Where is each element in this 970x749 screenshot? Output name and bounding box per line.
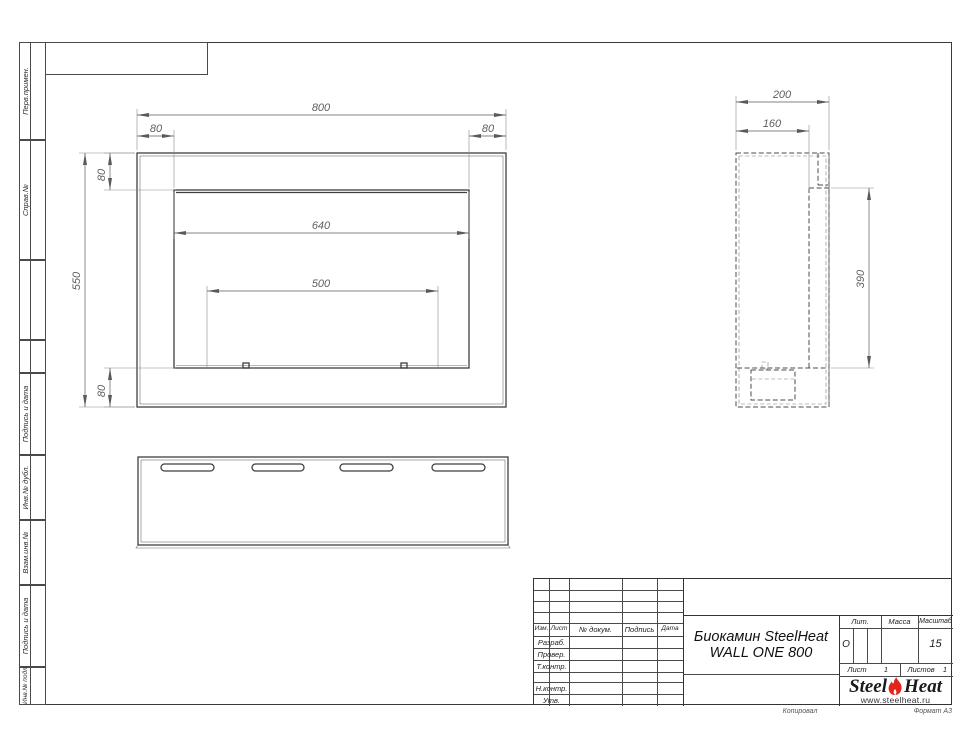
sidebar-box-podpis-data-1: Подпись и дата [19,373,46,455]
sidebar-label: Инв.№ подл. [21,668,31,704]
role-utv: Утв. [534,697,569,705]
sidebar-label: Взам.инв.№ [21,521,31,584]
scale-value: 15 [918,639,953,650]
footer-format: Формат А3 [880,708,952,715]
col-data: Дата [657,626,683,633]
copy-stamp-box [45,42,208,75]
sidebar-divider [30,341,31,372]
sidebar-box-empty [19,340,46,373]
sidebar-divider [30,261,31,339]
sidebar-box-empty [19,260,46,340]
col-docnum: № докум. [569,626,622,634]
lit-label: Лит. [839,618,881,626]
scale-label: Масштаб [918,618,953,625]
sidebar-box-inv-dubl: Инв.№ дубл. [19,455,46,520]
document-title: Биокамин SteelHeat WALL ONE 800 [683,615,839,674]
title-block: Изм. Лист № докум. Подпись Дата Разраб. … [533,578,952,705]
col-izm: Изм. [534,626,549,633]
document-title-line1: Биокамин SteelHeat [694,629,828,645]
sidebar-box-sprav-no: Справ.№ [19,140,46,260]
footer-copied: Копировал [740,708,860,715]
role-nkontr: Н.контр. [534,685,569,693]
company-logo: Steel Heat www.steelheat.ru [839,676,952,705]
logo-text-steel: Steel [849,677,887,696]
role-tkontr: Т.контр. [534,663,569,671]
document-title-line2: WALL ONE 800 [710,645,813,661]
sidebar-label: Справ.№ [21,141,31,259]
logo-text-heat: Heat [904,677,942,696]
drawing-sheet: 800 80 80 80 550 640 [0,0,970,749]
flame-icon [888,677,903,696]
sheets-label: Листов [903,666,939,674]
sidebar-box-inv-podl: Инв.№ подл. [19,667,46,705]
sidebar-box-vzam-inv: Взам.инв.№ [19,520,46,585]
sidebar-label: Инв.№ дубл. [21,456,31,519]
sidebar-label: Подпись и дата [21,586,31,666]
sidebar-label: Подпись и дата [21,374,31,454]
role-prover: Провер. [534,651,569,659]
lit-value: О [839,640,853,650]
sheet-value: 1 [876,666,896,674]
col-list: Лист [549,626,569,633]
logo-url: www.steelheat.ru [861,695,931,705]
sheet-label: Лист [841,666,873,674]
role-razrab: Разраб. [534,639,569,647]
sidebar-label: Перв.примен. [21,43,31,139]
col-podpis: Подпись [622,626,657,634]
sidebar-box-podpis-data-2: Подпись и дата [19,585,46,667]
sheets-value: 1 [938,666,952,674]
sidebar-box-perv-primen: Перв.примен. [19,42,46,140]
mass-label: Масса [881,618,918,626]
